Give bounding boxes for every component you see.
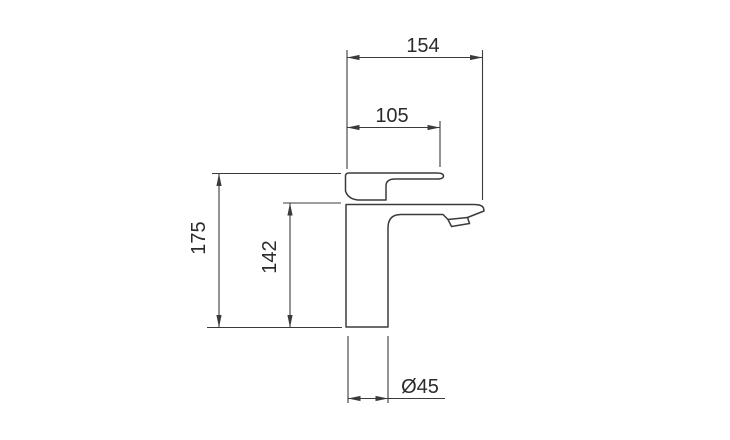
dim-label-body-height: 142 — [259, 240, 281, 273]
dim-label-base-diameter: Ø45 — [401, 376, 439, 398]
dimension-base-diameter: Ø45 — [348, 336, 445, 403]
faucet-dimension-drawing: 154 105 175 142 Ø45 — [0, 0, 730, 440]
arrow-right-icon — [376, 396, 389, 401]
dimension-body-height: 142 — [259, 203, 341, 328]
dim-label-overall-height: 175 — [188, 221, 210, 254]
dim-label-top-width: 105 — [375, 105, 408, 127]
dim-label-overall-width: 154 — [406, 35, 439, 57]
dimension-overall-width: 154 — [347, 35, 483, 200]
dimension-top-width: 105 — [347, 105, 440, 167]
arrow-left-icon — [348, 396, 361, 401]
aerator-edge — [448, 218, 468, 220]
faucet-outline — [346, 173, 485, 327]
faucet-handle-lever — [346, 173, 444, 200]
technical-drawing-page: 154 105 175 142 Ø45 — [0, 0, 730, 440]
faucet-body-and-spout — [346, 205, 484, 328]
